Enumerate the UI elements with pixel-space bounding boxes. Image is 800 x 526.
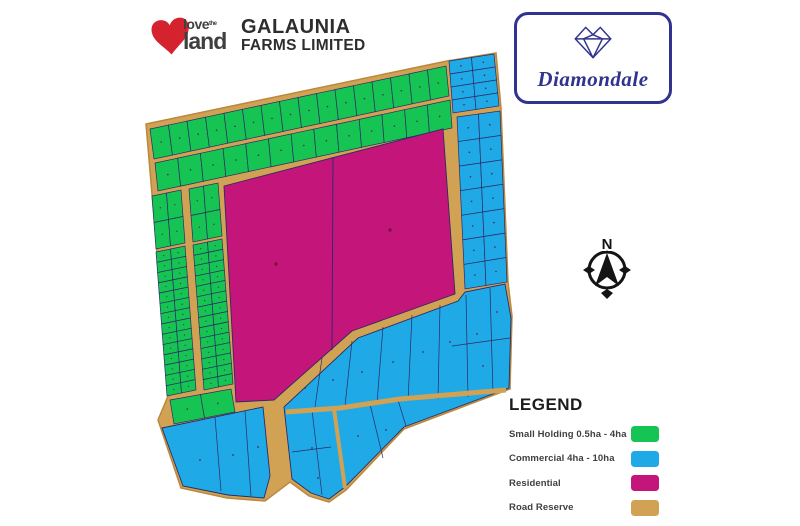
legend-label: Commercial 4ha - 10ha xyxy=(509,453,615,464)
legend-swatch-residential xyxy=(631,475,659,491)
region-small-holding-strip2-top xyxy=(189,183,222,242)
legend-swatch-commercial xyxy=(631,451,659,467)
page: lovethe land GALAUNIA FARMS LIMITED Diam… xyxy=(0,0,800,526)
legend-label: Road Reserve xyxy=(509,502,574,513)
site-map xyxy=(0,0,800,526)
region-commercial-topright-block xyxy=(449,54,499,113)
legend-item-residential: Residential xyxy=(509,475,659,491)
legend-label: Residential xyxy=(509,478,561,489)
legend-swatch-road-reserve xyxy=(631,500,659,516)
region-commercial-right-column xyxy=(457,111,507,289)
legend-title: LEGEND xyxy=(509,395,659,415)
legend-label: Small Holding 0.5ha - 4ha xyxy=(509,429,627,440)
legend-swatch-small-holding xyxy=(631,426,659,442)
legend-item-road-reserve: Road Reserve xyxy=(509,500,659,516)
region-small-holding-strip1-top xyxy=(152,190,185,249)
legend-item-small-holding: Small Holding 0.5ha - 4ha xyxy=(509,426,659,442)
legend: LEGEND Small Holding 0.5ha - 4ha Commerc… xyxy=(509,395,659,524)
legend-item-commercial: Commercial 4ha - 10ha xyxy=(509,451,659,467)
